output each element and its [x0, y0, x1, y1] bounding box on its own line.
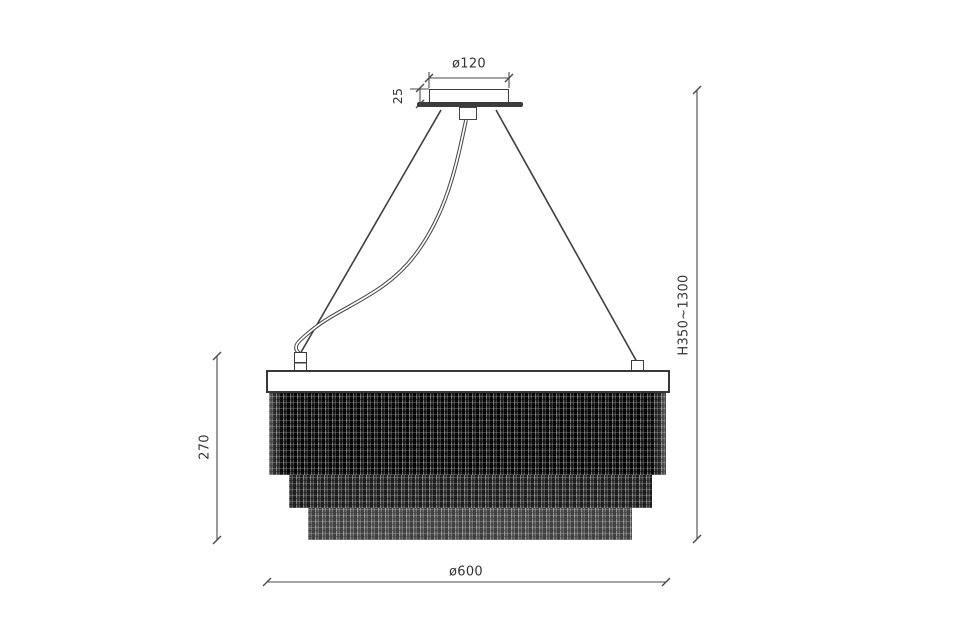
chain-tier-top — [269, 392, 666, 475]
technical-drawing-canvas: ø120 25 H350~1300 270 ø600 — [0, 0, 975, 622]
dim-body-height — [213, 352, 221, 544]
dim-body-diameter-label: ø600 — [449, 566, 483, 579]
dim-canopy-height-label: 25 — [392, 88, 405, 105]
wire-connector-left — [294, 352, 307, 372]
dim-hanging-height — [693, 86, 701, 543]
dim-hanging-height-label: H350~1300 — [678, 274, 691, 355]
ceiling-canopy-plate — [429, 89, 509, 103]
canopy-hanger-stub — [459, 107, 477, 120]
chandelier-rim — [266, 370, 670, 393]
dim-body-height-label: 270 — [199, 434, 212, 460]
suspension-wire-left — [300, 110, 441, 354]
dim-canopy-diameter-label: ø120 — [452, 58, 486, 71]
suspension-wire-right — [496, 110, 637, 362]
dim-canopy-diameter — [425, 72, 513, 88]
